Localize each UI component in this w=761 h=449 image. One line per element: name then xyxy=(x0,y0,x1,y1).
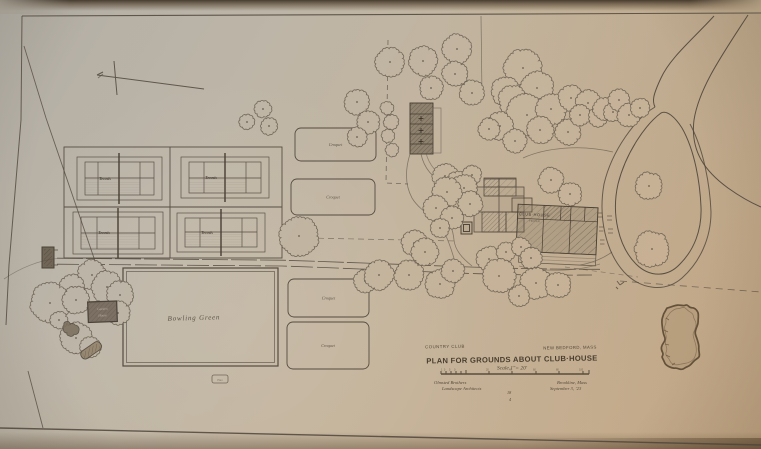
svg-text:Tennis: Tennis xyxy=(205,175,217,180)
svg-text:Landscape Architects: Landscape Architects xyxy=(441,386,482,391)
svg-text:Plan: Plan xyxy=(217,378,223,382)
svg-text:FIN FLR: FIN FLR xyxy=(529,219,540,223)
svg-text:Bowling Green: Bowling Green xyxy=(167,313,220,322)
svg-text:Croquet: Croquet xyxy=(329,142,343,147)
svg-text:COUNTRY CLUB: COUNTRY CLUB xyxy=(425,344,465,350)
svg-text:Croquet: Croquet xyxy=(322,296,336,301)
svg-text:NEW BEDFORD, MASS: NEW BEDFORD, MASS xyxy=(543,345,597,351)
svg-text:Croquet: Croquet xyxy=(326,195,340,200)
svg-text:100: 100 xyxy=(579,369,584,372)
svg-text:Garden: Garden xyxy=(97,307,108,311)
svg-text:Olmsted Brothers: Olmsted Brothers xyxy=(434,380,467,385)
svg-text:Tennis: Tennis xyxy=(99,176,111,181)
svg-text:Croquet: Croquet xyxy=(321,343,335,348)
svg-text:House: House xyxy=(97,313,107,317)
svg-text:10 5 0: 10 5 0 xyxy=(441,369,457,372)
svg-text:Tennis: Tennis xyxy=(201,230,213,235)
svg-text:4: 4 xyxy=(509,397,511,402)
svg-text:Tennis: Tennis xyxy=(98,230,110,235)
svg-text:Scale 1″= 20′: Scale 1″= 20′ xyxy=(497,366,528,372)
